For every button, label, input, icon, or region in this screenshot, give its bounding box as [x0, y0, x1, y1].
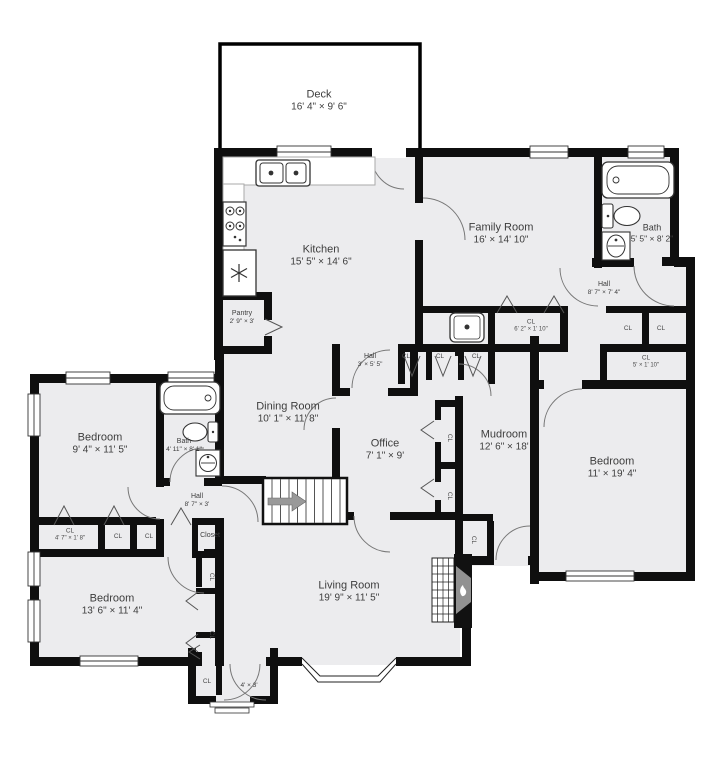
window [28, 552, 40, 586]
stove-icon [223, 202, 246, 246]
window [28, 600, 40, 642]
bathtub-icon [160, 382, 220, 414]
window [66, 372, 110, 384]
window [277, 146, 331, 158]
fireplace-icon [432, 554, 472, 628]
toilet-icon [183, 422, 218, 442]
deck-outline [220, 44, 420, 156]
toilet-icon [602, 204, 640, 228]
utility-sink-icon [450, 313, 484, 342]
staircase [263, 478, 347, 524]
window [80, 656, 138, 666]
window [566, 571, 634, 581]
floor-plan-drawing [0, 0, 717, 760]
room-floors [38, 156, 686, 703]
window [530, 146, 568, 158]
bathtub-icon [602, 162, 674, 198]
floor-plan: Deck16' 4" × 9' 6" Kitchen15' 5" × 14' 6… [0, 0, 717, 760]
door-openings [372, 147, 406, 158]
kitchen-double-sink-icon [256, 160, 310, 186]
refrigerator-icon [223, 250, 256, 296]
window [628, 146, 664, 158]
pedestal-sink-icon [196, 450, 220, 476]
entry-steps [210, 702, 254, 713]
pedestal-sink-icon [602, 232, 630, 260]
window [28, 394, 40, 436]
